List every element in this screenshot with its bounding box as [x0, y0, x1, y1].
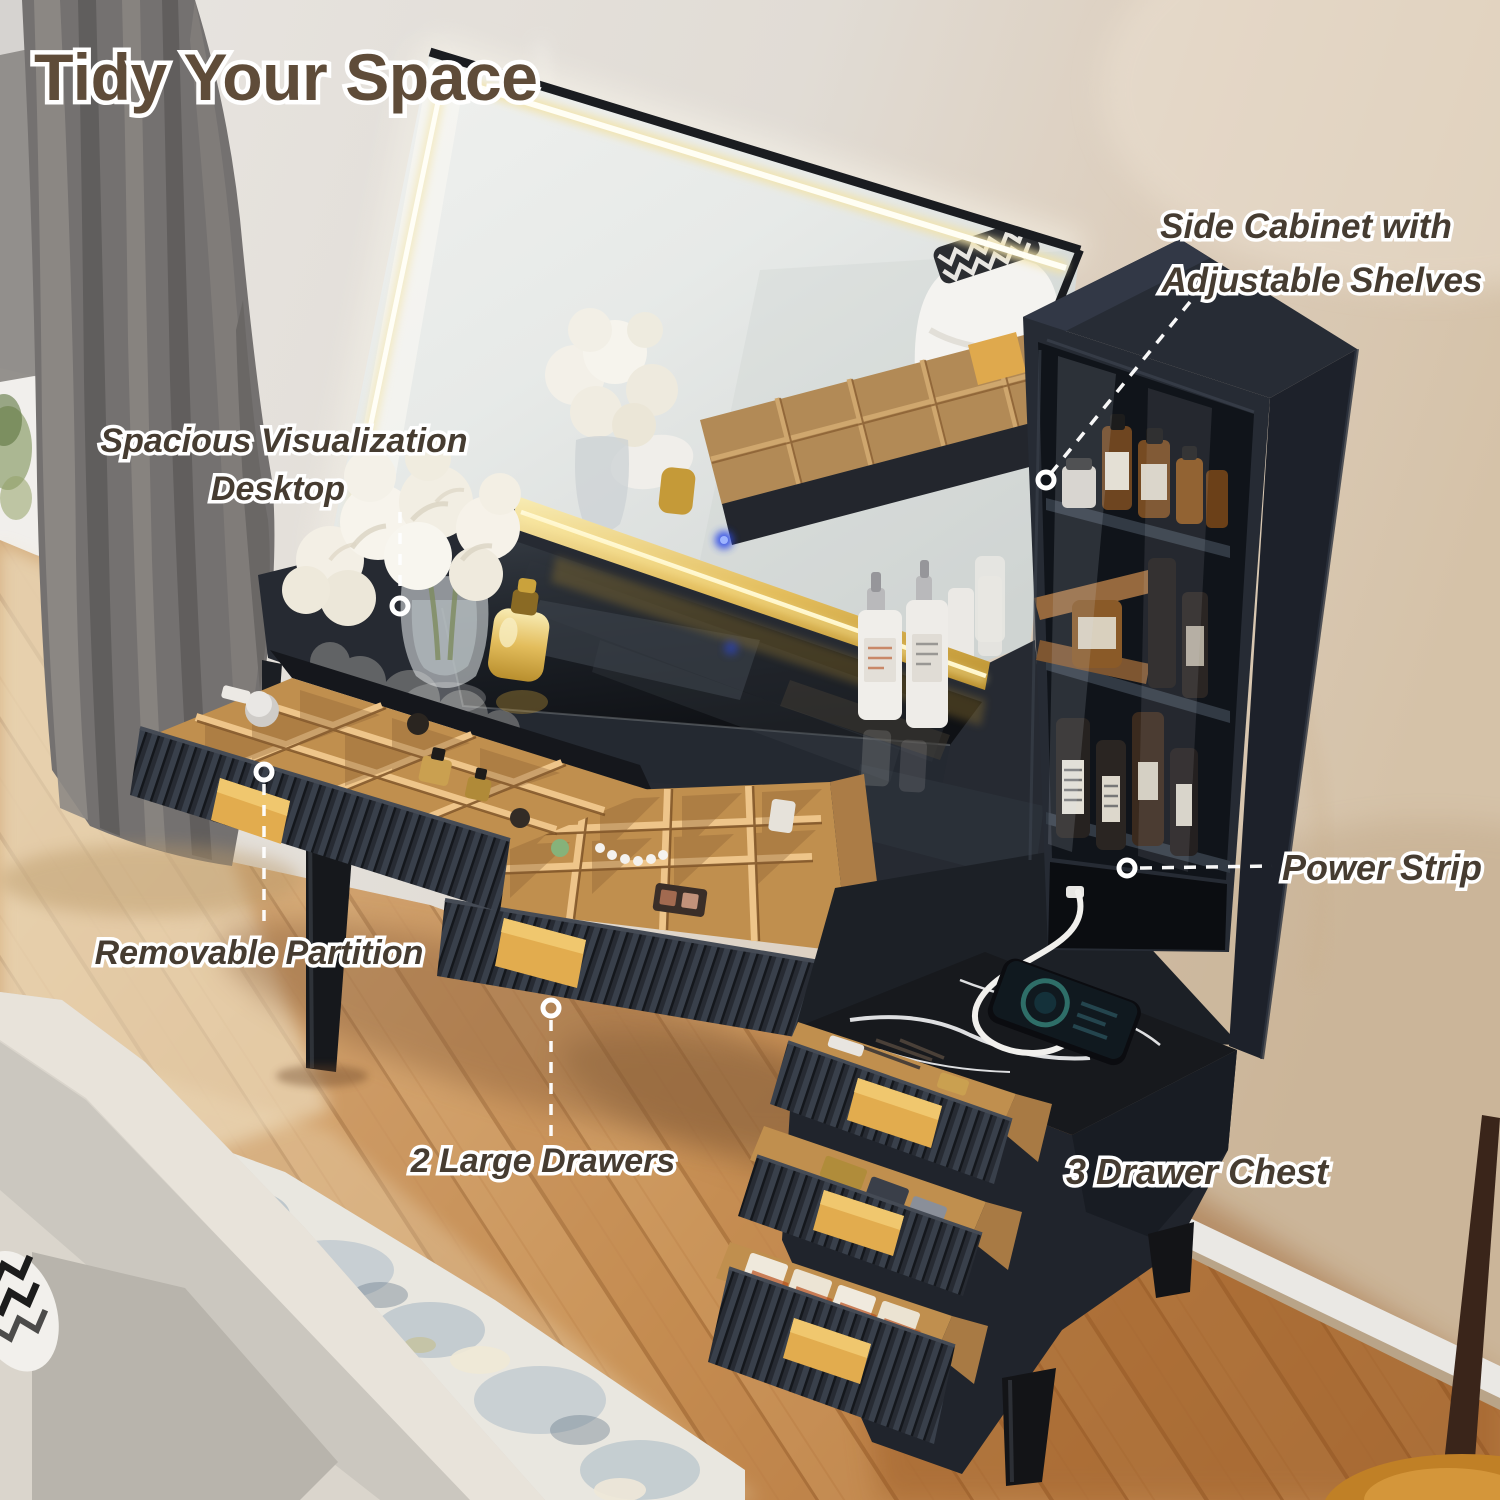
svg-text:Side Cabinet with: Side Cabinet with [1160, 207, 1452, 246]
svg-text:Power Strip: Power Strip [1282, 847, 1482, 888]
svg-text:Removable Partition: Removable Partition [95, 934, 424, 972]
svg-text:Desktop: Desktop [211, 470, 345, 508]
svg-text:Tidy Your Space: Tidy Your Space [34, 40, 538, 114]
svg-text:2 Large Drawers: 2 Large Drawers [410, 1142, 676, 1180]
svg-text:Spacious Visualization: Spacious Visualization [100, 422, 467, 460]
svg-text:Adjustable Shelves: Adjustable Shelves [1161, 261, 1483, 300]
svg-text:3 Drawer Chest: 3 Drawer Chest [1066, 1151, 1330, 1192]
